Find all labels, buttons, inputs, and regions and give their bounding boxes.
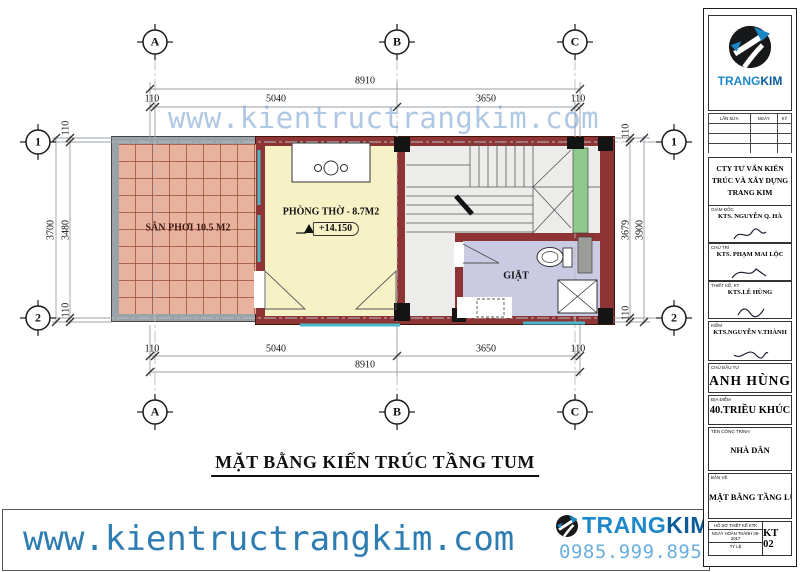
- trangkim-logo-icon: [727, 24, 773, 70]
- dim-bot-overall: 8910: [355, 360, 375, 371]
- dim-top-seg3: 3650: [476, 94, 496, 105]
- signature-icon: [730, 344, 770, 360]
- drawing-label: BẢN VẼ: [711, 475, 728, 480]
- meta-completed: NGÀY HOÀN THÀNH 09-2017: [709, 530, 762, 543]
- grid-bubble-1-left: 1: [35, 135, 41, 150]
- dim-top-seg1: 110: [145, 94, 160, 105]
- address-label: ĐỊA ĐIỂM: [711, 397, 731, 402]
- client-name: ANH HÙNG: [709, 373, 791, 389]
- drawing-name: MẶT BẰNG TẦNG LỬNG: [709, 492, 791, 502]
- dim-left-seg1: 110: [61, 121, 72, 136]
- dim-bot-seg3: 3650: [476, 344, 496, 355]
- footer-phone: 0985.999.895: [559, 541, 702, 563]
- signer-role: GIÁM ĐỐC: [711, 207, 734, 212]
- client-box: CHỦ ĐẦU TƯ ANH HÙNG: [708, 363, 792, 393]
- dim-right-seg3: 110: [621, 306, 632, 321]
- titleblock-logo-box: TRANGKIM: [708, 15, 792, 111]
- dim-top-seg4: 110: [571, 94, 586, 105]
- drawing-title: MẶT BẰNG KIẾN TRÚC TẦNG TUM: [211, 452, 539, 477]
- grid-bubble-c-top: C: [571, 35, 580, 50]
- signature-icon: [730, 226, 770, 242]
- project-label: TÊN CÔNG TRÌNH: [711, 429, 750, 434]
- dim-top-seg2: 5040: [266, 94, 286, 105]
- signer-name: KTS. PHẠM MAI LỘC: [709, 251, 791, 258]
- dim-left-seg3: 110: [61, 303, 72, 318]
- rev-header-ngay: NGÀY: [750, 114, 777, 124]
- dim-bot-seg4: 110: [571, 344, 586, 355]
- drawing-box: BẢN VẼ MẶT BẰNG TẦNG LỬNG: [708, 473, 792, 519]
- signer-box-3: THIẾT KẾ, KT KTS.LÊ HÙNG: [708, 281, 792, 319]
- trangkim-logo-icon: [555, 514, 579, 538]
- level-label: +14.150: [313, 222, 359, 236]
- client-label: CHỦ ĐẦU TƯ: [711, 365, 739, 370]
- signer-box-2: CHỦ TRÌ KTS. PHẠM MAI LỘC: [708, 243, 792, 281]
- signer-role: KIỂM: [711, 323, 722, 328]
- address-box: ĐỊA ĐIỂM 40.TRIỀU KHÚC: [708, 395, 792, 425]
- project-name: NHÀ DÂN: [709, 445, 791, 455]
- brand-part1: TRANG: [718, 74, 761, 88]
- meta-scale-label: TỶ LỆ: [709, 543, 762, 550]
- signer-box-4: KIỂM KTS.NGUYỄN V.THÀNH: [708, 321, 792, 361]
- signer-role: THIẾT KẾ, KT: [711, 283, 739, 288]
- room-label-giat: GIẶT: [503, 271, 529, 282]
- grid-bubble-2-right: 2: [671, 311, 677, 326]
- sheet-number: KT 02: [763, 522, 791, 555]
- signer-name: KTS.LÊ HÙNG: [709, 289, 791, 296]
- signature-icon: [730, 264, 770, 280]
- grid-bubble-b-bottom: B: [393, 405, 401, 420]
- revision-table: LẦN SỬA NGÀY KÝ: [708, 113, 792, 153]
- dim-top-overall: 8910: [355, 76, 375, 87]
- signer-name: KTS. NGUYỄN Q. HÀ: [709, 213, 791, 220]
- address-value: 40.TRIỀU KHÚC: [709, 405, 791, 416]
- altar-table: [292, 143, 370, 182]
- grid-bubble-c-bottom: C: [571, 405, 580, 420]
- footer-brand: TRANGKIM: [555, 512, 710, 539]
- dim-right-overall: 3900: [635, 220, 646, 240]
- meta-box: HỒ SƠ THIẾT KẾ KTK NGÀY HOÀN THÀNH 09-20…: [708, 521, 792, 556]
- dim-right-seg2: 3679: [621, 220, 632, 240]
- staircase: [406, 142, 600, 233]
- plan-linework: [0, 0, 800, 572]
- room-label-san-phoi: SÂN PHƠI 10.5 M2: [146, 223, 231, 234]
- meta-design-doc: HỒ SƠ THIẾT KẾ KTK: [709, 522, 762, 530]
- level-marker-icon: [296, 224, 314, 233]
- watermark-text: www.kientructrangkim.com: [168, 101, 599, 135]
- planter-strip: [573, 148, 588, 233]
- brand-part1: TRANG: [582, 512, 666, 538]
- dim-left-seg2: 3480: [61, 220, 72, 240]
- duct-strip: [578, 237, 592, 273]
- rev-header-ky: KÝ: [777, 114, 791, 124]
- brand-part2: KIM: [760, 74, 782, 88]
- grid-bubble-1-right: 1: [671, 135, 677, 150]
- title-block: TRANGKIM LẦN SỬA NGÀY KÝ CTY TƯ VẤN KIẾN…: [703, 8, 797, 567]
- signer-role: CHỦ TRÌ: [711, 245, 729, 250]
- room-label-phong-tho: PHÒNG THỜ - 8.7M2: [283, 207, 379, 218]
- door-openings: [254, 242, 464, 308]
- dim-left-overall: 3700: [46, 220, 57, 240]
- dim-bot-seg2: 5040: [266, 344, 286, 355]
- dim-right-seg1: 110: [621, 124, 632, 139]
- company-box: CTY TƯ VẤN KIẾN TRÚC VÀ XÂY DỰNG TRANG K…: [708, 157, 792, 208]
- washing-machine-icon: [457, 297, 512, 318]
- grid-bubble-a-bottom: A: [151, 405, 160, 420]
- signature-icon: [730, 302, 770, 318]
- signer-name: KTS.NGUYỄN V.THÀNH: [709, 329, 791, 336]
- grid-bubble-b-top: B: [393, 35, 401, 50]
- dim-bot-seg1: 110: [145, 344, 160, 355]
- project-box: TÊN CÔNG TRÌNH NHÀ DÂN: [708, 427, 792, 471]
- toilet-icon: [537, 248, 572, 268]
- drawing-sheet: www.kientructrangkim.com A B C A B C 1 2…: [0, 0, 800, 572]
- grid-bubble-2-left: 2: [35, 311, 41, 326]
- footer-bar: www.kientructrangkim.com TRANGKIM 0985.9…: [2, 509, 710, 571]
- grid-bubble-a-top: A: [151, 35, 160, 50]
- signer-box-1: GIÁM ĐỐC KTS. NGUYỄN Q. HÀ: [708, 205, 792, 243]
- rev-header-lan-sua: LẦN SỬA: [709, 114, 751, 124]
- footer-website: www.kientructrangkim.com: [23, 519, 514, 559]
- shaft-x-box: [558, 280, 597, 313]
